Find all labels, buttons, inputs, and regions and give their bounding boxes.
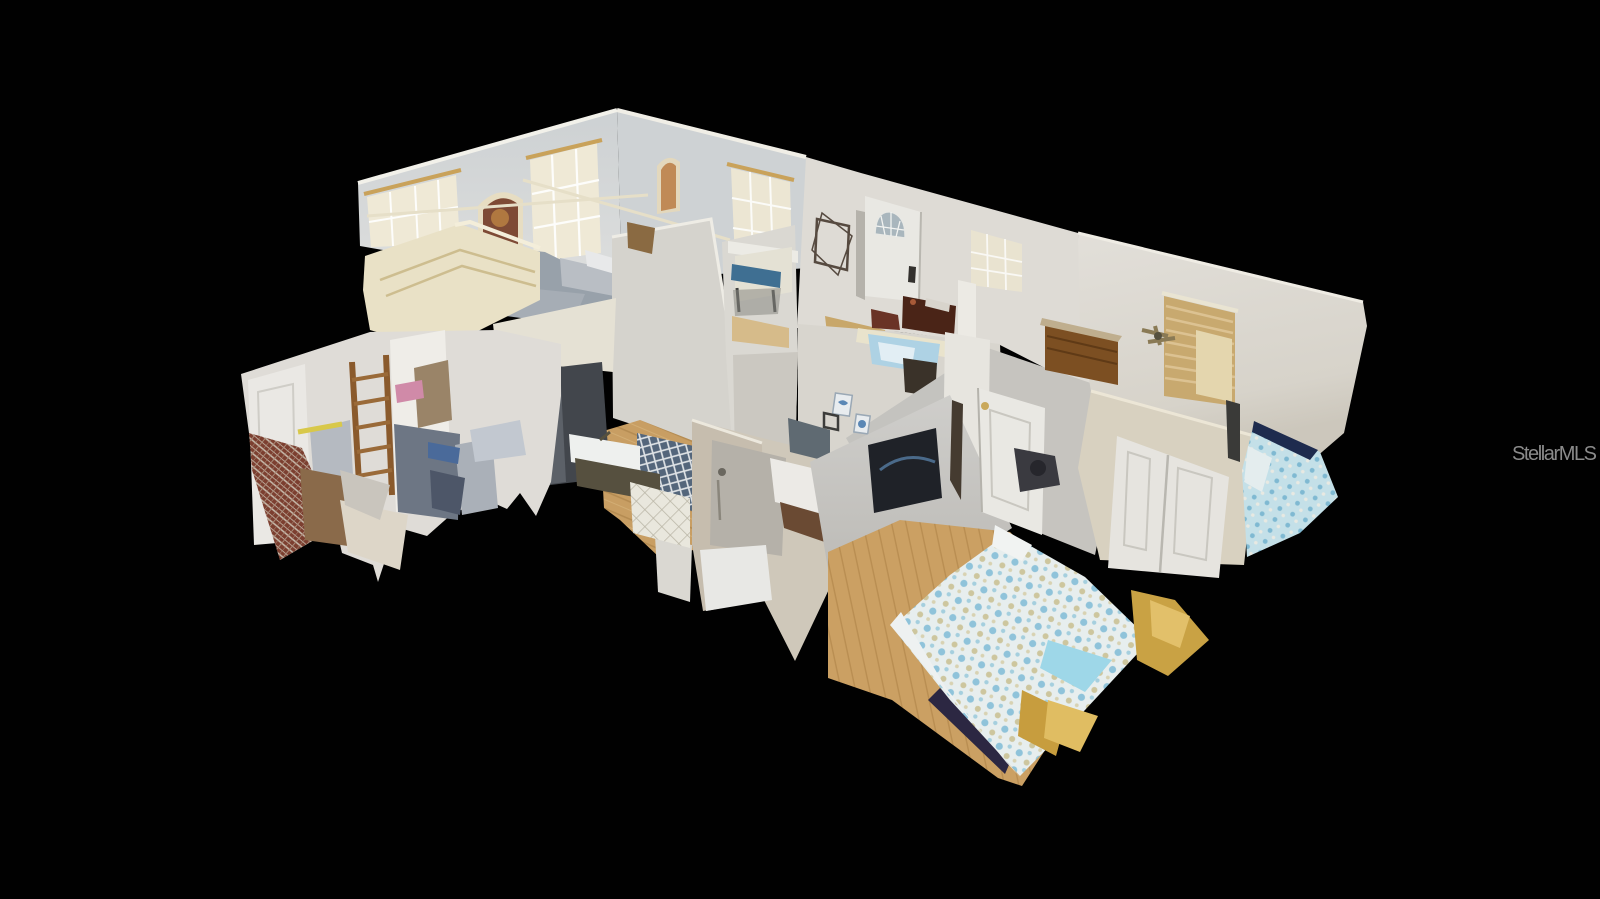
svg-text:StellarMLS: StellarMLS (1512, 443, 1597, 465)
